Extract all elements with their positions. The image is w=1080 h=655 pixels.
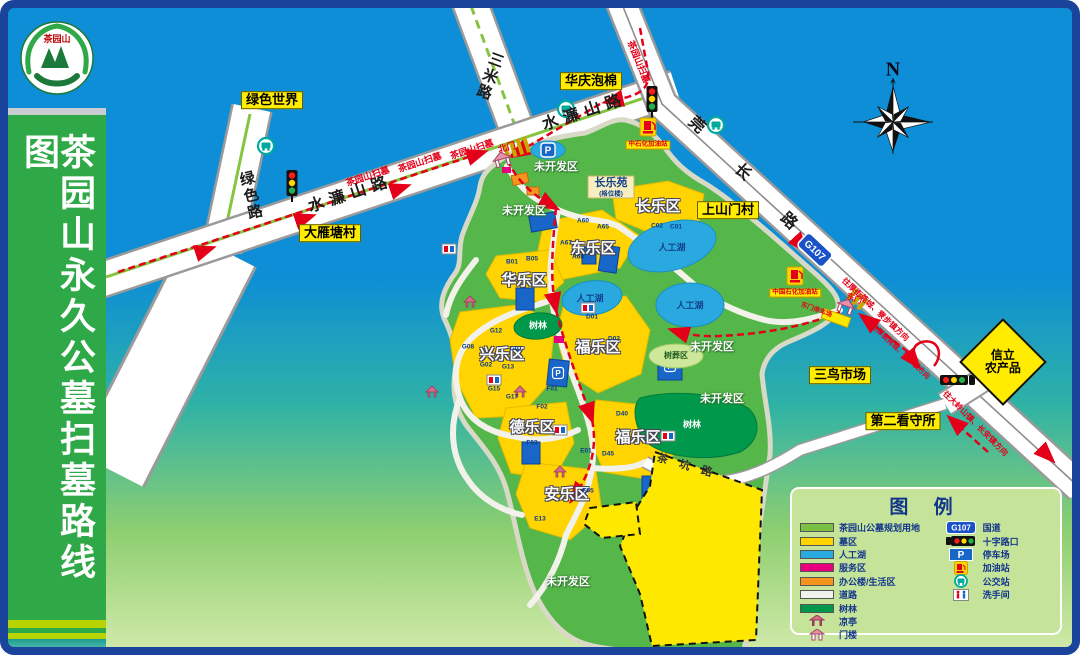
poster-title: 茶园山永久公墓扫墓路线图: [21, 133, 93, 620]
cemetery-logo: 茶园山: [8, 8, 106, 115]
bus-stop-icon: [944, 574, 978, 588]
legend-swatch-lake: [800, 550, 834, 559]
compass-icon: [853, 78, 933, 154]
legend-swatch-service: [800, 563, 834, 572]
restroom-icon: [944, 589, 978, 601]
sidebar-footer-band: [8, 639, 106, 647]
gate-icon: [800, 629, 834, 641]
legend-swatch-road: [800, 590, 834, 599]
logo-text: 茶园山: [42, 33, 70, 44]
pavilion-icon: [800, 615, 834, 627]
svg-text:P: P: [957, 550, 964, 561]
g107-badge-icon: G107: [944, 521, 978, 534]
svg-text:G107: G107: [951, 524, 971, 533]
sidebar-stripe: [8, 620, 106, 628]
legend-swatch-office: [800, 577, 834, 586]
legend-panel: 图 例 茶园山公墓规划用地 墓区 人工湖 服务区 办公楼/生活区 道路 树林 凉…: [790, 487, 1062, 635]
gas-station-icon: [944, 561, 978, 575]
parking-p-label: P: [545, 146, 552, 157]
legend-swatch-tomb: [800, 537, 834, 546]
legend-title: 图 例: [800, 492, 1052, 519]
legend-swatch-planned: [800, 523, 834, 532]
crossroad-icon: [944, 535, 978, 547]
parking-badge-icon: P: [944, 548, 978, 561]
route-map-poster: P P P P: [0, 0, 1080, 655]
legend-swatch-forest: [800, 604, 834, 613]
title-sidebar: 茶园山 茶园山永久公墓扫墓路线图: [8, 8, 106, 647]
title-band: 茶园山永久公墓扫墓路线图: [8, 115, 106, 620]
svg-text:P: P: [555, 369, 561, 378]
